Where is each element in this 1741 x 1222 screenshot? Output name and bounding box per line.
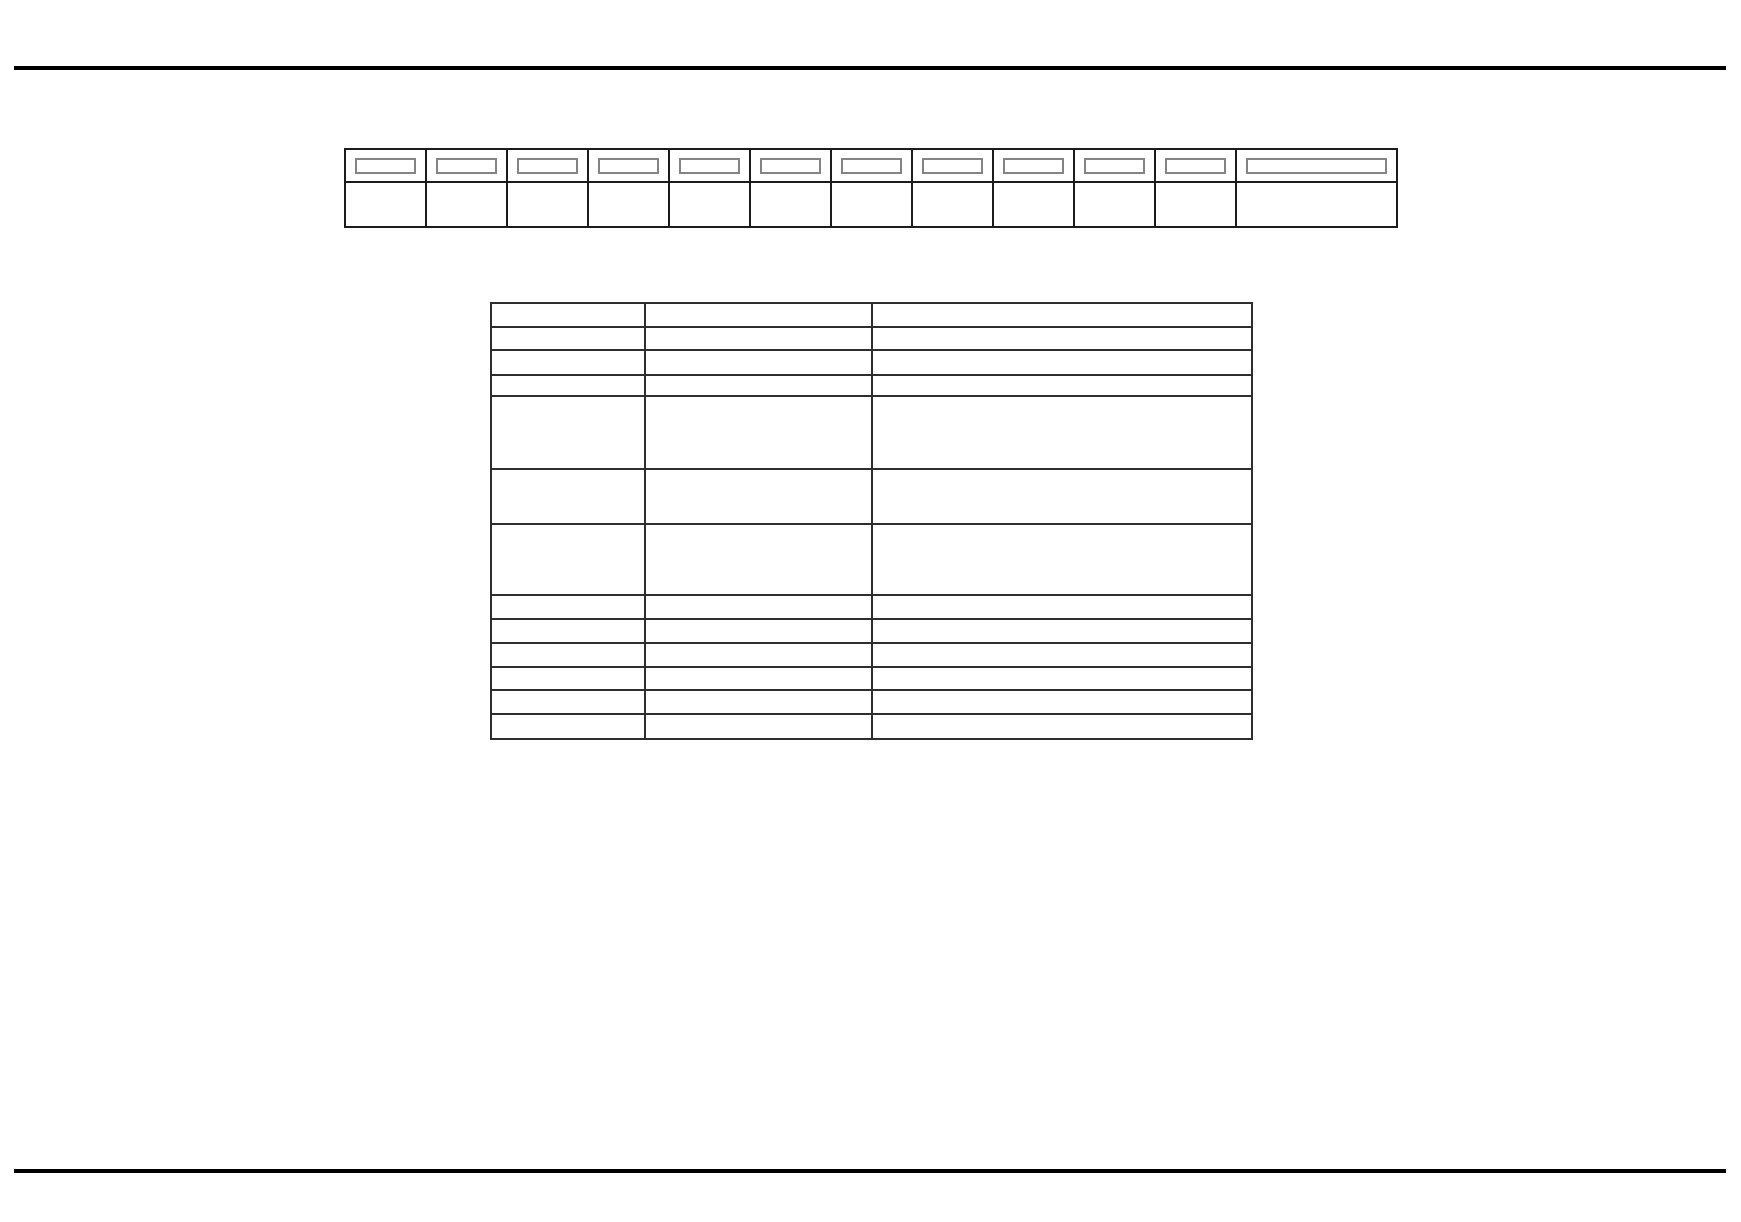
table-row [491,396,1252,469]
table-cell [491,714,645,739]
table-cell [872,714,1252,739]
table-cell [645,714,872,739]
table-cell [645,524,872,595]
field-body-cell [1236,182,1397,227]
table-cell [872,327,1252,350]
top-rule [14,66,1726,70]
field-body-cell [345,182,426,227]
form-field-box[interactable] [922,158,983,174]
field-header-cell [1155,149,1236,182]
field-body-cell [669,182,750,227]
table-cell [491,469,645,524]
field-body-cell [507,182,588,227]
field-body-cell [1074,182,1155,227]
field-body-cell [750,182,831,227]
table-cell [491,524,645,595]
table-cell [645,690,872,714]
table-cell [491,350,645,375]
table-cell [872,690,1252,714]
field-header-cell [831,149,912,182]
table-cell [645,327,872,350]
table-cell [645,469,872,524]
field-body-cell [1155,182,1236,227]
header-fields-table [344,148,1398,228]
table-cell [491,595,645,619]
field-header-cell [993,149,1074,182]
field-body-cell [588,182,669,227]
form-field-box[interactable] [1003,158,1064,174]
form-field-box[interactable] [1246,158,1387,174]
form-field-box[interactable] [436,158,497,174]
field-body-row [345,182,1397,227]
table-row [491,469,1252,524]
table-row [491,524,1252,595]
table-cell [491,375,645,396]
table-row [491,667,1252,690]
field-header-cell [588,149,669,182]
table-cell [491,327,645,350]
table-cell [872,350,1252,375]
field-body-cell [993,182,1074,227]
table-cell [872,524,1252,595]
field-header-cell [912,149,993,182]
bottom-rule [14,1169,1726,1173]
table-cell [872,303,1252,327]
table-row [491,327,1252,350]
field-header-cell [426,149,507,182]
table-cell [491,667,645,690]
table-cell [645,350,872,375]
table-row [491,690,1252,714]
table-cell [491,643,645,667]
field-header-cell [1236,149,1397,182]
table-cell [645,619,872,643]
table-row [491,595,1252,619]
field-header-cell [507,149,588,182]
table-cell [491,690,645,714]
form-field-box[interactable] [517,158,578,174]
field-header-cell [669,149,750,182]
table-cell [872,595,1252,619]
field-body-cell [912,182,993,227]
table-cell [491,396,645,469]
table-cell [872,375,1252,396]
form-field-box[interactable] [355,158,416,174]
field-header-cell [345,149,426,182]
table-row [491,714,1252,739]
table-cell [872,396,1252,469]
table-cell [872,643,1252,667]
field-body-cell [831,182,912,227]
table-cell [645,595,872,619]
field-header-cell [750,149,831,182]
field-body-cell [426,182,507,227]
form-field-box[interactable] [760,158,821,174]
table-cell [645,396,872,469]
table-row [491,350,1252,375]
table-row [491,643,1252,667]
form-field-box[interactable] [598,158,659,174]
table-row [491,303,1252,327]
table-cell [645,303,872,327]
field-header-row [345,149,1397,182]
table-cell [645,375,872,396]
table-cell [645,667,872,690]
form-field-box[interactable] [1084,158,1145,174]
table-cell [872,469,1252,524]
document-page [0,0,1741,1222]
form-field-box[interactable] [679,158,740,174]
table-cell [491,303,645,327]
table-cell [872,619,1252,643]
details-table [490,302,1253,740]
form-field-box[interactable] [841,158,902,174]
table-row [491,619,1252,643]
table-row [491,375,1252,396]
table-cell [645,643,872,667]
form-field-box[interactable] [1165,158,1226,174]
field-header-cell [1074,149,1155,182]
table-cell [872,667,1252,690]
table-cell [491,619,645,643]
